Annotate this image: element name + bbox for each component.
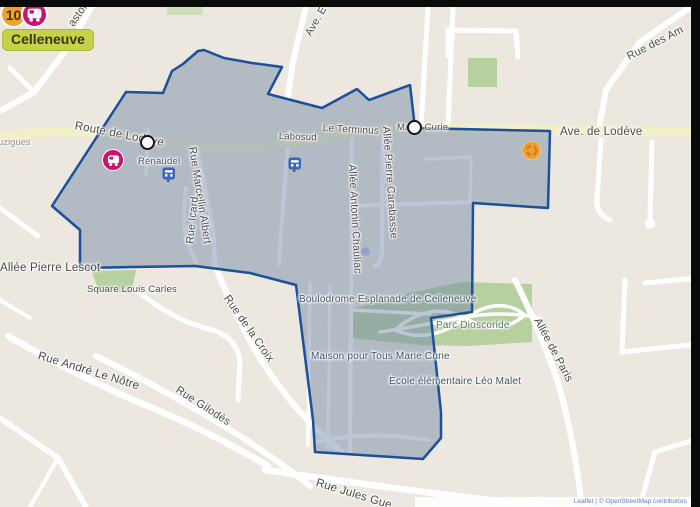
school-glyph — [162, 167, 176, 183]
line-number: 10 — [6, 7, 22, 23]
orange-poi-icon[interactable] — [522, 141, 541, 160]
tram-station-icon[interactable] — [102, 149, 124, 171]
transit-stop-marker[interactable] — [407, 120, 422, 135]
transit-stop-marker[interactable] — [140, 135, 155, 150]
poi-label-parc-dioscoride: Parc Dioscoride — [436, 320, 510, 331]
tram-icon — [26, 7, 43, 22]
school-glyph — [288, 157, 302, 173]
poi-label-square-louis-carles: Square Louis Carles — [87, 284, 177, 295]
area-name-chip: Celleneuve — [2, 29, 94, 51]
right-letterbox-bar — [691, 0, 700, 507]
poi-label-boulodrome: Boulodrome Esplanade de Celleneuve — [299, 294, 476, 305]
street-label-labosud: Labosud — [279, 131, 317, 143]
poi-label-renaudel: Renaudel — [138, 156, 180, 167]
tram-glyph — [106, 154, 121, 167]
orange-glyph — [525, 144, 538, 157]
school-icon[interactable] — [288, 157, 302, 178]
small-dot-marker — [361, 247, 370, 256]
poi-label-maison-pour-tous: Maison pour Tous Marie Curie — [311, 351, 450, 362]
map-view[interactable]: astor Ave. E Rue des Am Luzigues Route d… — [0, 0, 700, 507]
street-label-luzigues: Luzigues — [0, 137, 31, 147]
top-letterbox-bar — [0, 0, 700, 7]
map-attribution[interactable]: Leaflet | © OpenStreetMap contributors — [415, 497, 691, 507]
area-name: Celleneuve — [11, 31, 85, 47]
school-icon[interactable] — [162, 167, 176, 188]
street-label-allee-pierre-lescot: Allée Pierre Lescot — [0, 262, 100, 274]
poi-label-ecole-leo-malet: École élémentaire Léo Malet — [389, 376, 521, 387]
street-label-ave-de-lodeve: Ave. de Lodève — [560, 126, 643, 138]
stop-label-marie-curie: Marie Curie — [397, 122, 448, 133]
